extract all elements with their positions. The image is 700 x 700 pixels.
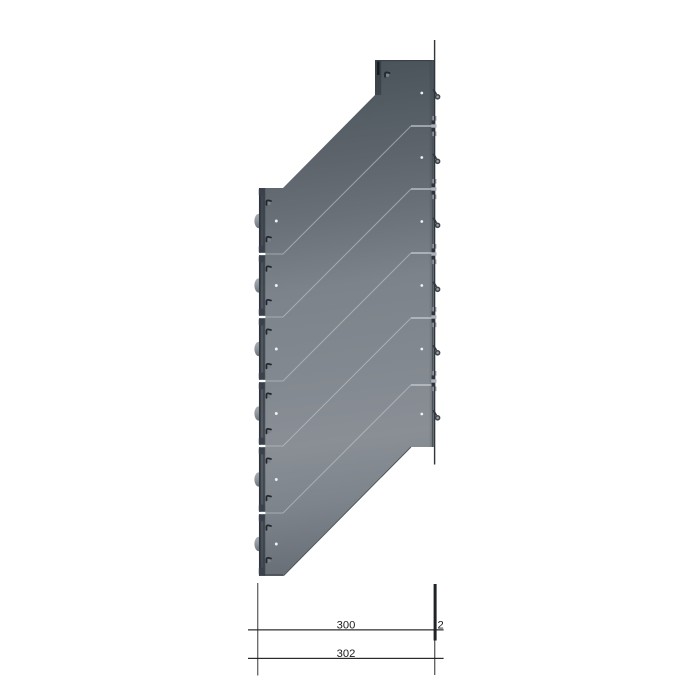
svg-text:300: 300 bbox=[337, 619, 356, 631]
svg-text:2: 2 bbox=[438, 619, 444, 631]
svg-text:302: 302 bbox=[337, 648, 356, 660]
